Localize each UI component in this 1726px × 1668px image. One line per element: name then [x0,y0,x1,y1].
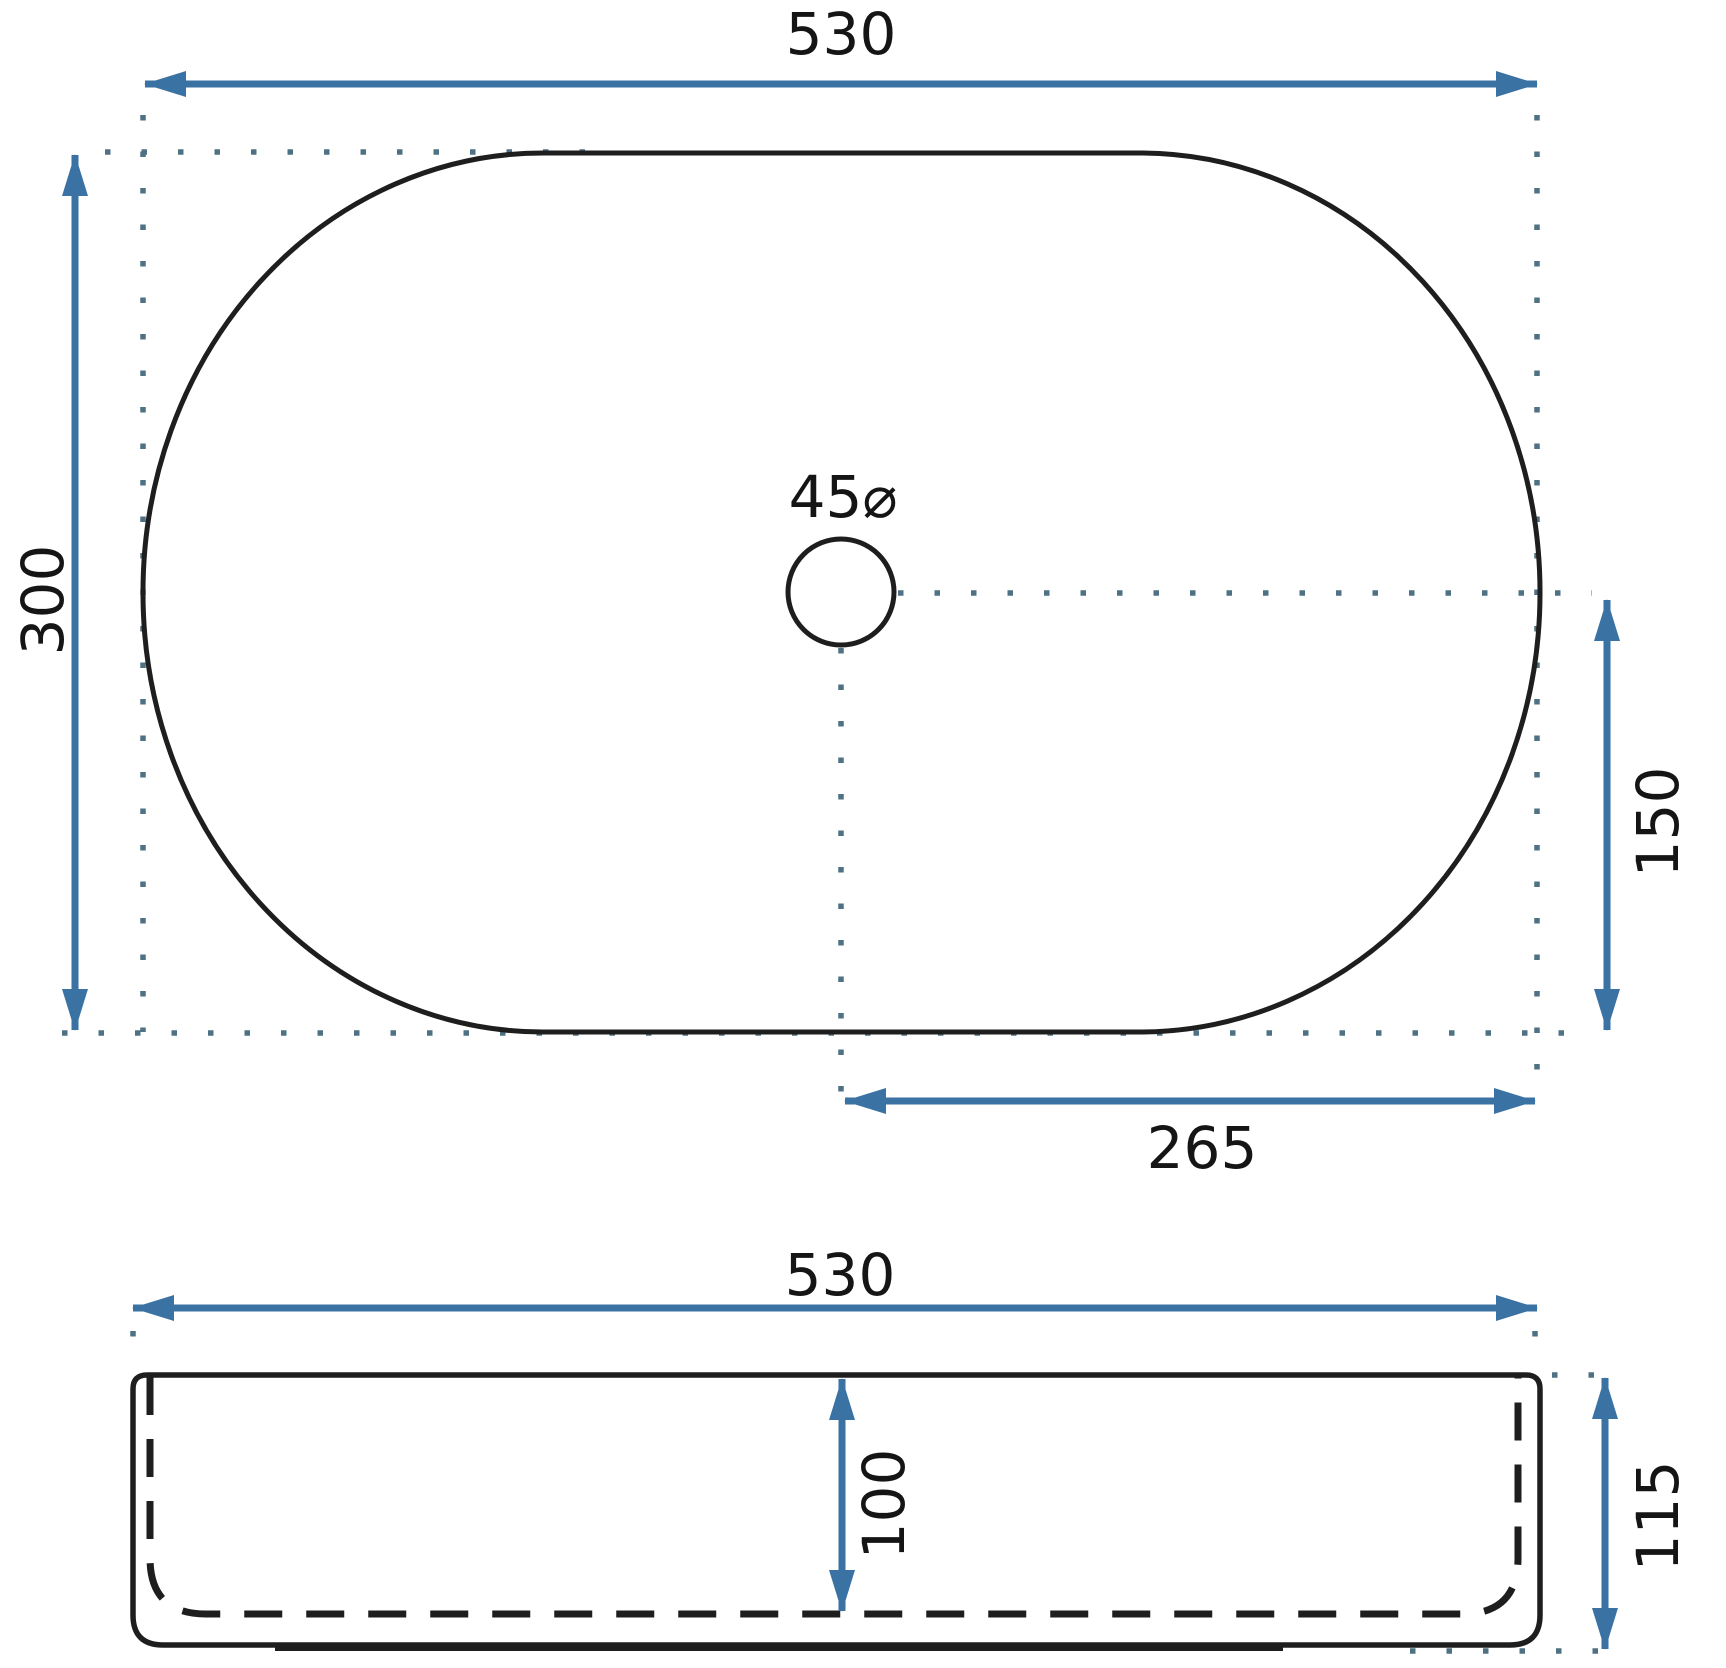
drain-hole-circle [788,539,894,645]
dim-label-total-height: 115 [1624,1461,1692,1572]
basin-side-outline [133,1375,1540,1645]
drain-diameter-label: 45⌀ [789,463,898,531]
dim-label-center-to-bottom: 150 [1624,767,1692,878]
basin-inner-bowl-dashed [150,1377,1518,1614]
side-view: 530 100 115 [133,1241,1692,1651]
dim-label-center-to-right: 265 [1147,1114,1258,1182]
top-view: 530 300 45⌀ 150 265 [9,0,1692,1182]
dim-label-left-height: 300 [9,545,77,656]
dim-label-side-width: 530 [785,1241,896,1309]
technical-drawing-canvas: 530 300 45⌀ 150 265 530 100 115 [0,0,1726,1668]
dim-label-top-width: 530 [786,0,897,68]
washbasin-dimension-diagram: 530 300 45⌀ 150 265 530 100 115 [0,0,1726,1668]
dim-label-basin-depth: 100 [850,1449,918,1560]
basin-top-outline [143,153,1540,1032]
